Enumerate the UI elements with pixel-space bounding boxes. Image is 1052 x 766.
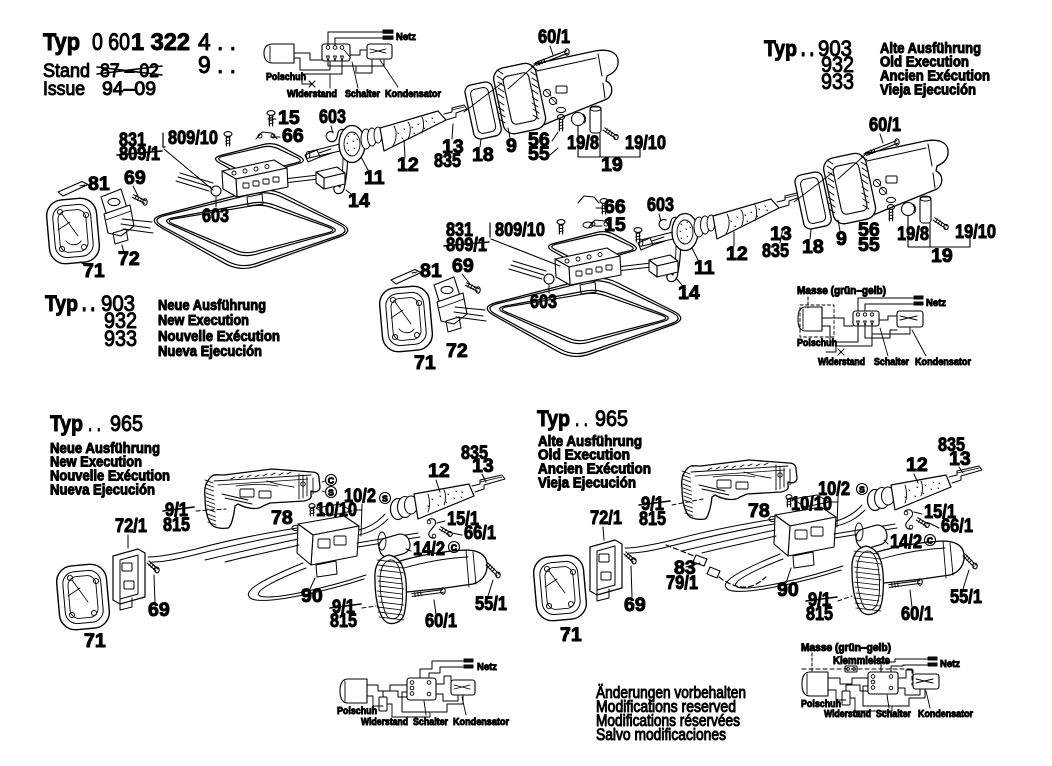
svg-text:94–09: 94–09 [102, 79, 156, 100]
svg-text:69: 69 [148, 599, 170, 621]
svg-text:965: 965 [595, 406, 628, 431]
svg-text:69: 69 [624, 594, 646, 616]
svg-text:Masse (grün–gelb): Masse (grün–gelb) [801, 642, 891, 654]
svg-text:809/10: 809/10 [168, 127, 218, 149]
svg-text:Schalter: Schalter [874, 356, 909, 368]
svg-text:9: 9 [506, 135, 517, 157]
svg-text:9 . .: 9 . . [198, 52, 236, 79]
svg-text:72: 72 [118, 248, 140, 270]
svg-text:. .: . . [801, 36, 814, 61]
svg-text:C: C [328, 476, 334, 486]
svg-text:0 60: 0 60 [92, 29, 130, 56]
svg-text:81: 81 [88, 173, 110, 195]
svg-text:14/2: 14/2 [413, 538, 445, 560]
svg-text:81: 81 [420, 260, 442, 282]
svg-text:60/1: 60/1 [425, 610, 457, 632]
svg-text:71: 71 [83, 260, 105, 282]
svg-text:Schalter: Schalter [345, 88, 380, 100]
svg-text:71: 71 [560, 624, 582, 646]
svg-text:Typ: Typ [45, 291, 78, 316]
svg-text:933: 933 [104, 326, 137, 351]
svg-text:Nueva Ejecución: Nueva Ejecución [158, 344, 262, 360]
svg-text:72: 72 [446, 340, 468, 362]
svg-text:Kondensator: Kondensator [915, 356, 971, 368]
svg-text:Netz: Netz [940, 658, 960, 670]
svg-text:809/10: 809/10 [495, 219, 545, 241]
svg-text:603: 603 [530, 291, 557, 313]
svg-text:19/10: 19/10 [955, 221, 996, 243]
svg-text:Schalter: Schalter [413, 716, 448, 728]
svg-text:C: C [927, 536, 933, 546]
svg-text:Polschuh: Polschuh [797, 337, 837, 349]
svg-text:55/1: 55/1 [950, 586, 982, 608]
svg-text:12: 12 [726, 243, 748, 265]
svg-text:11: 11 [364, 167, 385, 189]
svg-text:603: 603 [647, 194, 674, 216]
svg-text:Typ: Typ [764, 36, 797, 61]
svg-text:66/1: 66/1 [941, 515, 973, 537]
svg-text:19/10: 19/10 [625, 132, 666, 154]
svg-text:14: 14 [678, 282, 700, 304]
svg-text:69: 69 [452, 255, 474, 277]
svg-text:Nouvelle Exécution: Nouvelle Exécution [158, 329, 280, 345]
svg-text:19/8: 19/8 [897, 223, 929, 245]
svg-text:18: 18 [472, 144, 494, 166]
svg-text:66: 66 [282, 125, 304, 147]
svg-text:10/10: 10/10 [791, 493, 832, 515]
svg-text:Nueva Ejecución: Nueva Ejecución [50, 483, 155, 499]
svg-text:Netz: Netz [926, 297, 946, 309]
svg-text:Kondensator: Kondensator [453, 716, 509, 728]
svg-text:55: 55 [858, 234, 880, 256]
svg-text:13: 13 [949, 448, 971, 470]
svg-text:10/10: 10/10 [316, 499, 357, 521]
svg-text:12: 12 [428, 460, 450, 482]
svg-text:Polschuh: Polschuh [266, 71, 306, 83]
svg-text:71: 71 [414, 352, 436, 374]
svg-text:Kondensator: Kondensator [385, 88, 441, 100]
svg-text:603: 603 [202, 205, 229, 227]
svg-text:Typ: Typ [537, 406, 570, 431]
svg-text:79/1: 79/1 [666, 572, 698, 594]
svg-text:815: 815 [330, 610, 357, 632]
svg-text:11: 11 [694, 257, 715, 279]
svg-text:. .: . . [82, 291, 95, 316]
svg-text:15: 15 [604, 214, 626, 236]
svg-text:Widerstand: Widerstand [818, 356, 865, 368]
svg-text:Issue: Issue [43, 79, 85, 100]
svg-text:815: 815 [163, 514, 190, 536]
svg-text:. .: . . [88, 411, 101, 436]
svg-text:12: 12 [397, 154, 419, 176]
svg-text:72/1: 72/1 [115, 515, 147, 537]
svg-text:Schalter: Schalter [876, 708, 911, 720]
svg-text:78: 78 [748, 500, 770, 522]
svg-text:55: 55 [528, 143, 550, 165]
svg-text:Netz: Netz [477, 661, 497, 673]
svg-text:Neue Ausführung: Neue Ausführung [158, 298, 266, 314]
svg-text:14/2: 14/2 [890, 531, 922, 553]
svg-text:C: C [451, 543, 457, 553]
svg-text:72/1: 72/1 [590, 507, 622, 529]
svg-text:Typ: Typ [50, 411, 83, 436]
svg-text:. .: . . [575, 406, 588, 431]
svg-text:69: 69 [124, 167, 146, 189]
svg-text:1 322: 1 322 [131, 29, 190, 56]
svg-text:14: 14 [348, 190, 370, 212]
svg-text:965: 965 [110, 411, 143, 436]
svg-text:19: 19 [601, 154, 623, 176]
svg-text:19: 19 [931, 245, 953, 267]
svg-text:835: 835 [434, 150, 461, 172]
svg-text:Vieja Ejecución: Vieja Ejecución [880, 83, 976, 99]
svg-text:815: 815 [806, 603, 833, 625]
svg-text:55/1: 55/1 [475, 593, 507, 615]
svg-text:Typ: Typ [43, 29, 80, 56]
svg-text:78: 78 [271, 507, 293, 529]
svg-text:835: 835 [762, 240, 789, 262]
svg-text:90: 90 [301, 585, 323, 607]
svg-text:New Execution: New Execution [158, 313, 249, 329]
svg-text:90: 90 [777, 579, 799, 601]
svg-text:60/1: 60/1 [901, 603, 933, 625]
svg-text:Widerstand: Widerstand [824, 708, 871, 720]
svg-text:60/1: 60/1 [538, 26, 570, 48]
svg-text:60/1: 60/1 [869, 114, 901, 136]
svg-text:Masse (grün–gelb): Masse (grün–gelb) [797, 285, 886, 297]
svg-text:19/8: 19/8 [567, 132, 599, 154]
svg-text:Widerstand: Widerstand [287, 88, 337, 100]
svg-text:13: 13 [472, 455, 494, 477]
svg-text:S: S [328, 488, 334, 498]
svg-text:Kondensator: Kondensator [918, 708, 973, 720]
svg-text:933: 933 [821, 69, 854, 94]
svg-text:66/1: 66/1 [464, 522, 496, 544]
svg-text:18: 18 [802, 236, 824, 258]
svg-text:Vieja Ejecución: Vieja Ejecución [538, 476, 636, 492]
svg-text:12: 12 [906, 454, 928, 476]
svg-text:815: 815 [639, 508, 666, 530]
svg-text:S: S [382, 494, 388, 504]
svg-text:Widerstand: Widerstand [361, 716, 408, 728]
svg-text:Salvo modificaciones: Salvo modificaciones [596, 726, 726, 744]
svg-text:603: 603 [319, 106, 346, 128]
svg-text:71: 71 [84, 630, 106, 652]
svg-text:Netz: Netz [396, 31, 416, 43]
svg-text:9: 9 [836, 228, 847, 250]
